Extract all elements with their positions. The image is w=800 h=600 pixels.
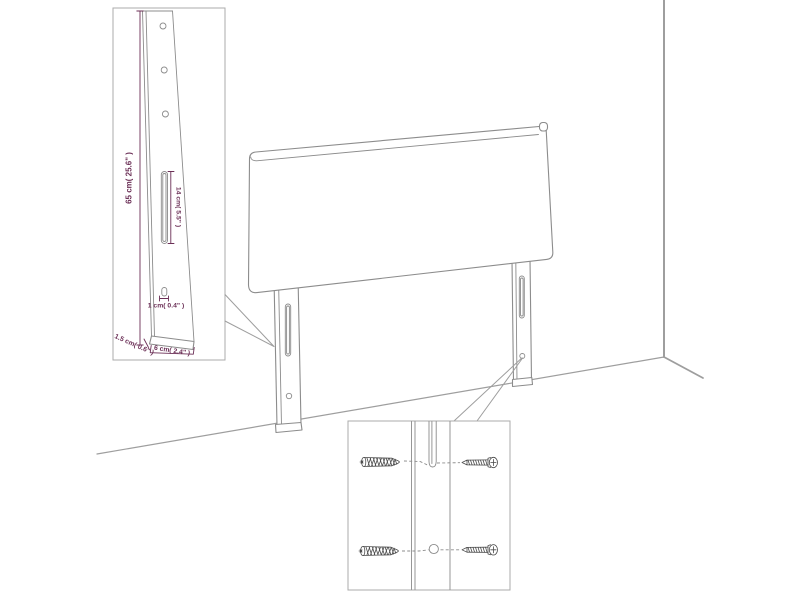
floor-line-right xyxy=(664,357,703,378)
headboard-panel xyxy=(249,123,553,293)
dimension-label-hook-size: 1 cm( 0.4" ) xyxy=(148,303,184,310)
dimension-label-leg-height: 65 cm( 25.6" ) xyxy=(125,152,134,204)
hardware-detail-inset xyxy=(348,421,510,590)
dimension-label-slot-length: 14 cm( 5.5" ) xyxy=(175,187,182,227)
left-mounting-leg xyxy=(274,276,302,433)
assembly-diagram: 65 cm( 25.6" ) 14 cm( 5.5" ) 1 cm( 0.4" … xyxy=(0,0,800,600)
headboard-top-right-cap xyxy=(540,123,548,132)
detail-callout-lines xyxy=(225,295,523,422)
right-mounting-leg xyxy=(512,259,533,387)
diagram-linework xyxy=(0,0,800,600)
